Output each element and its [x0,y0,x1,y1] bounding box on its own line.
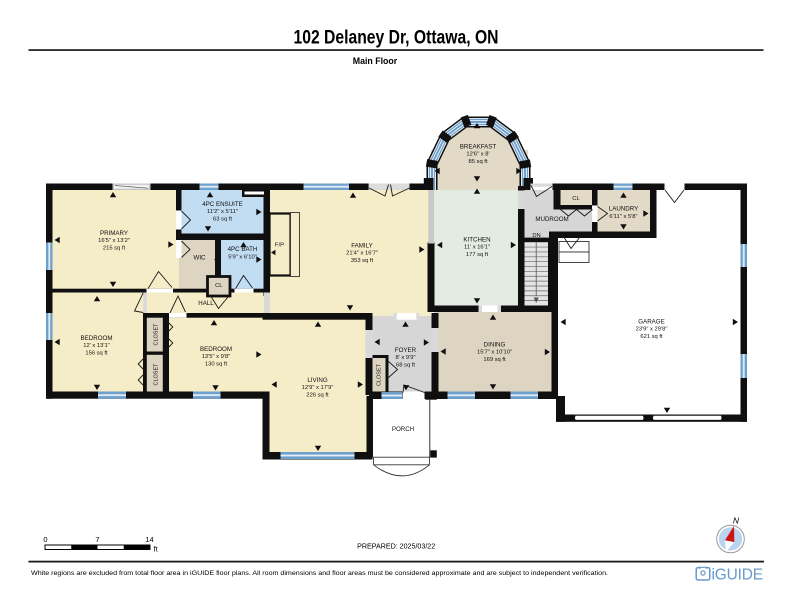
svg-text:CLOSET: CLOSET [377,363,383,386]
svg-text:8' x 9'9": 8' x 9'9" [395,355,415,361]
svg-text:156 sq ft: 156 sq ft [85,350,108,356]
svg-text:63 sq ft: 63 sq ft [213,216,232,222]
svg-text:0: 0 [43,535,47,544]
svg-text:13'5" x 9'8": 13'5" x 9'8" [202,354,231,360]
svg-text:226 sq ft: 226 sq ft [306,392,329,398]
svg-text:130 sq ft: 130 sq ft [205,361,228,367]
svg-text:iGUIDE: iGUIDE [712,567,763,584]
svg-text:WIC: WIC [193,255,206,262]
svg-text:102 Delaney Dr, Ottawa, ON: 102 Delaney Dr, Ottawa, ON [294,28,499,49]
svg-text:CL: CL [215,283,223,289]
svg-text:16'5" x 13'2": 16'5" x 13'2" [98,238,130,244]
svg-text:353 sq ft: 353 sq ft [351,258,374,264]
svg-text:177 sq ft: 177 sq ft [466,252,489,258]
svg-text:CL: CL [572,196,580,202]
svg-text:CLOSET: CLOSET [154,363,160,386]
svg-text:11'2" x 5'11": 11'2" x 5'11" [207,209,238,215]
svg-text:23'9" x 29'8": 23'9" x 29'8" [636,327,668,333]
svg-text:68 sq ft: 68 sq ft [396,362,415,368]
svg-text:12' x 13'1": 12' x 13'1" [83,343,110,349]
svg-text:Main Floor: Main Floor [353,56,398,66]
svg-text:KITCHEN: KITCHEN [463,236,490,243]
svg-text:215 sq ft: 215 sq ft [103,245,126,251]
svg-text:85 sq ft: 85 sq ft [468,159,487,165]
svg-text:DINING: DINING [484,341,506,348]
svg-text:BREAKFAST: BREAKFAST [460,143,497,150]
svg-text:4PC ENSUITE: 4PC ENSUITE [202,201,243,208]
svg-text:PREPARED: 2025/03/22: PREPARED: 2025/03/22 [357,543,435,550]
svg-text:11' x 16'1": 11' x 16'1" [464,245,490,251]
svg-text:169 sq ft: 169 sq ft [483,357,506,363]
svg-text:21'4" x 16'7": 21'4" x 16'7" [346,251,378,257]
svg-text:MUDROOM: MUDROOM [535,216,568,223]
svg-text:CLOSET: CLOSET [154,323,160,346]
svg-text:HALL: HALL [198,300,214,307]
svg-text:N: N [733,516,740,526]
svg-text:12'6" x 8': 12'6" x 8' [466,152,489,158]
svg-text:LAUNDRY: LAUNDRY [609,205,638,212]
svg-text:14: 14 [145,535,153,544]
svg-text:PRIMARY: PRIMARY [100,230,128,237]
svg-text:5'9" x 6'10": 5'9" x 6'10" [228,254,257,260]
svg-text:6'11" x 5'8": 6'11" x 5'8" [609,214,637,220]
svg-text:DN: DN [532,233,540,239]
svg-text:LIVING: LIVING [307,377,327,384]
svg-text:White regions are excluded fro: White regions are excluded from total fl… [31,570,608,577]
svg-text:PORCH: PORCH [392,426,414,433]
svg-text:FAMILY: FAMILY [351,242,373,249]
svg-text:4PC BATH: 4PC BATH [228,246,258,253]
svg-text:7: 7 [95,535,99,544]
svg-text:FOYER: FOYER [395,347,417,354]
svg-text:GARAGE: GARAGE [638,318,664,325]
svg-text:F/P: F/P [275,243,284,249]
svg-text:621 sq ft: 621 sq ft [640,334,663,340]
svg-text:BEDROOM: BEDROOM [81,335,113,342]
svg-text:BEDROOM: BEDROOM [200,346,232,353]
svg-text:15'7" x 10'10": 15'7" x 10'10" [477,350,512,356]
svg-text:12'9" x 17'9": 12'9" x 17'9" [302,385,334,391]
